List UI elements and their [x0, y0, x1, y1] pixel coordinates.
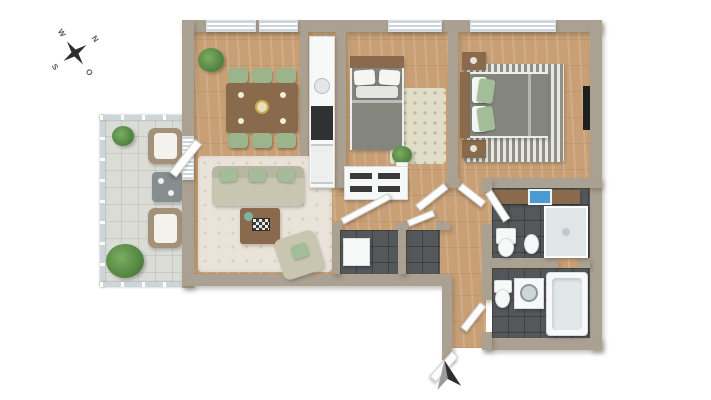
nightstand-lamp-bottom [470, 145, 477, 152]
balcony-railing-top [100, 115, 184, 120]
wall-kitchen-right [336, 32, 346, 188]
toilet-bowl-upper [498, 238, 514, 257]
wall-bedroom-divider [448, 32, 458, 178]
hallway-sideboard [344, 166, 408, 200]
sideboard-handle-4 [378, 186, 400, 192]
wall-living-south [182, 274, 452, 286]
bed1-pillow-3 [356, 86, 398, 98]
bed1-pillow-1 [354, 69, 376, 85]
bidet-upper [524, 234, 539, 254]
wall-bath-west-c [482, 332, 492, 350]
bed1-pillow-2 [379, 69, 401, 85]
oven [311, 144, 333, 184]
closet-floor-2 [406, 230, 440, 274]
entrance-arrow-icon [425, 355, 468, 395]
wall-bath-north [488, 178, 602, 188]
dining-chair-4 [228, 133, 248, 148]
toilet-bowl-lower [495, 289, 510, 308]
window-living-1 [206, 20, 256, 32]
washing-machine-door [520, 284, 538, 302]
wall-bath-west-b [482, 224, 492, 300]
compass-west-label: W [55, 26, 68, 39]
bed2-fold-line [528, 74, 531, 136]
bed1-headboard [350, 56, 404, 68]
window-bedroom1 [388, 20, 442, 32]
balcony-chair-cushion-1 [154, 133, 177, 159]
exterior-area [182, 286, 442, 400]
dining-chair-5 [252, 133, 272, 148]
compass-rose: N O S W [35, 13, 116, 94]
dining-chair-6 [276, 133, 296, 148]
window-bedroom2 [470, 20, 556, 32]
wall-closet-top-a [332, 222, 342, 230]
floor-plan-canvas: N O S W [0, 0, 711, 400]
wall-closet-mid [398, 230, 406, 274]
compass-east-label: O [83, 66, 96, 79]
wall-bath-divider [492, 258, 558, 268]
dining-chair-2 [252, 68, 272, 83]
balcony-plant-small [112, 126, 134, 146]
balcony-chair-cushion-2 [154, 214, 177, 243]
wall-closet-top-b [396, 222, 408, 230]
sideboard-handle-2 [378, 173, 400, 179]
table-decor-dot-2 [168, 190, 174, 196]
bed2-headboard [460, 72, 470, 138]
living-plant [198, 48, 224, 72]
sofa-pillow-2 [249, 169, 266, 182]
bed1-fold-line [350, 100, 404, 103]
wall-bath-south [482, 338, 602, 350]
nightstand-lamp-top [470, 57, 477, 64]
table-center-bowl [255, 100, 269, 114]
balcony-railing-bottom [100, 282, 184, 287]
dining-chair-3 [276, 68, 296, 83]
table-candle-4 [280, 118, 286, 124]
wall-bath-divider-stub [578, 258, 590, 268]
table-candle-1 [238, 92, 244, 98]
balcony-plant-large [106, 244, 144, 278]
table-candle-2 [280, 92, 286, 98]
teapot [244, 212, 253, 221]
kitchen-sink [314, 78, 330, 94]
window-living-2 [259, 20, 298, 32]
balcony-railing-left [100, 115, 105, 287]
bathtub-basin [552, 278, 582, 330]
closet-washer-box [343, 238, 370, 266]
compass-south-label: S [48, 60, 61, 73]
table-decor-dot [158, 178, 164, 184]
dining-chair-1 [228, 68, 248, 83]
game-board [252, 218, 270, 231]
shower-drain [562, 228, 570, 236]
bath-blue-washbasin [528, 189, 552, 205]
table-candle-3 [238, 118, 244, 124]
bed2-pillow-green-2 [476, 106, 495, 132]
bedroom2-wall-tv [583, 86, 590, 130]
wall-closet-left [332, 230, 340, 274]
sofa-pillow-1 [219, 168, 237, 183]
cooktop [311, 106, 333, 140]
sideboard-handle-1 [350, 173, 372, 179]
sofa-pillow-3 [277, 168, 295, 183]
bed2-pillow-green-1 [476, 78, 495, 104]
compass-north-label: N [89, 32, 102, 45]
balcony-side-table [152, 172, 182, 202]
sideboard-handle-3 [350, 186, 372, 192]
wall-closet-top-c [436, 222, 450, 230]
